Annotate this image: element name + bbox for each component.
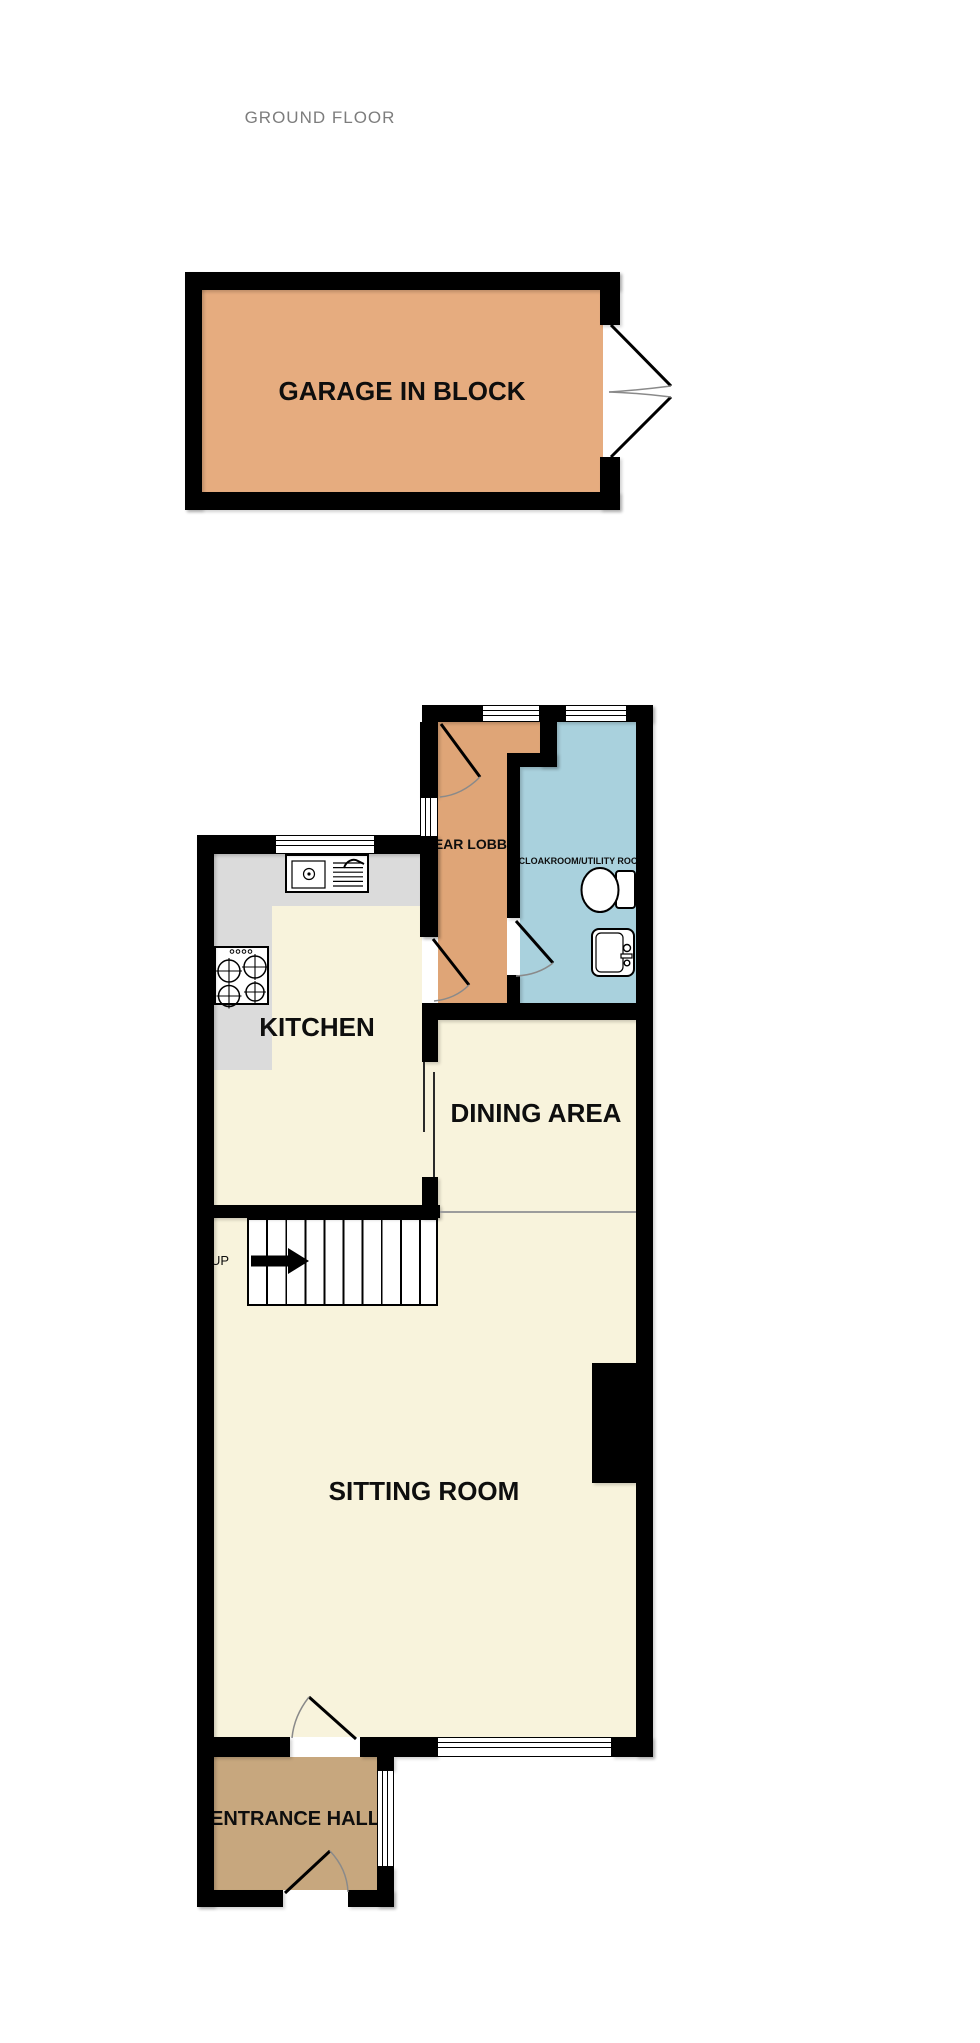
- wall-segment: [360, 1737, 437, 1757]
- dining-area-label: DINING AREA: [436, 1098, 636, 1129]
- window-symbol: [437, 1737, 612, 1757]
- garage-double-door-icon: [609, 325, 671, 457]
- stairs-up-label: UP: [211, 1253, 247, 1268]
- wall-segment: [377, 1757, 394, 1770]
- wall-segment: [348, 1890, 394, 1907]
- page-title: GROUND FLOOR: [200, 108, 440, 128]
- staircase: [247, 1218, 438, 1306]
- wall-segment: [197, 1737, 290, 1757]
- wall-segment: [185, 492, 620, 510]
- chimney-breast: [592, 1363, 636, 1483]
- kitchen-counter: [214, 854, 422, 906]
- wall-segment: [422, 854, 438, 937]
- window-symbol: [482, 705, 540, 722]
- wall-segment: [422, 1020, 438, 1062]
- wall-segment: [600, 457, 620, 510]
- window-symbol: [377, 1770, 394, 1867]
- wall-segment: [507, 753, 557, 767]
- kitchen-label: KITCHEN: [217, 1012, 417, 1043]
- opening-marker-line: [423, 1062, 425, 1132]
- open-plan-divider-line: [440, 1211, 636, 1213]
- cloakroom-floor: [520, 767, 636, 1003]
- sitting-room-label: SITTING ROOM: [264, 1476, 584, 1507]
- window-symbol: [565, 705, 627, 722]
- wall-segment: [185, 272, 202, 510]
- wall-segment: [507, 767, 520, 918]
- garage-label: GARAGE IN BLOCK: [222, 376, 582, 407]
- wall-segment: [600, 272, 620, 325]
- kitchen-counter: [214, 906, 272, 1070]
- wall-segment: [197, 1890, 283, 1907]
- wall-segment: [612, 1737, 653, 1757]
- wall-segment: [420, 722, 438, 797]
- rear-lobby-floor: [507, 722, 540, 753]
- entrance-hall-label: ENTRANCE HALL: [205, 1808, 385, 1831]
- window-symbol: [275, 835, 375, 854]
- wall-segment: [507, 975, 520, 1003]
- wall-segment: [185, 272, 620, 290]
- rear-lobby-floor: [438, 722, 507, 1003]
- wall-segment: [636, 705, 653, 1757]
- wall-segment: [197, 1205, 440, 1218]
- wall-segment: [422, 1003, 636, 1020]
- window-symbol: [420, 797, 438, 837]
- cloakroom-floor: [557, 722, 636, 767]
- opening-marker-line: [433, 1072, 435, 1177]
- floor-plan: GROUND FLOOR GARAGE IN BLOCK UP REAR LOB…: [0, 0, 980, 2043]
